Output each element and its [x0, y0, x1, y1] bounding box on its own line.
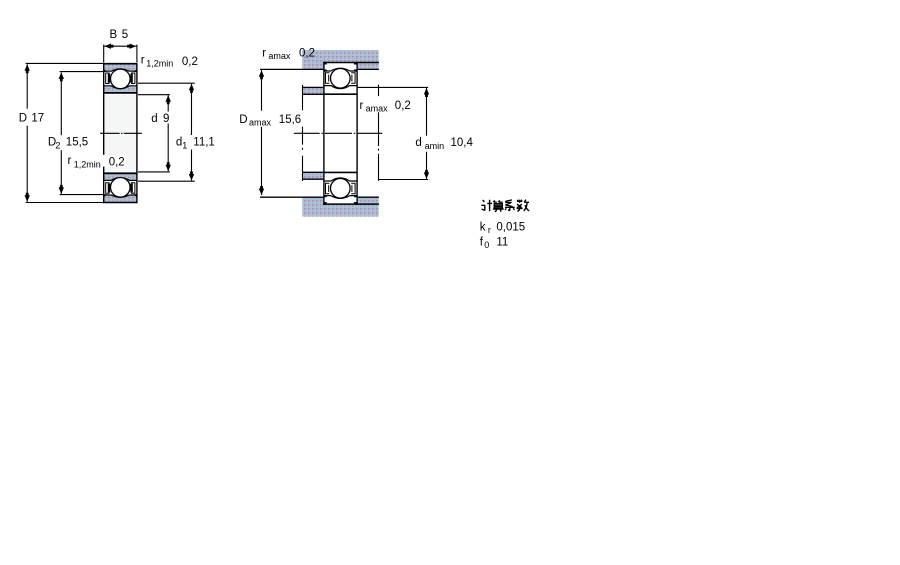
- svg-text:amax: amax: [366, 104, 389, 114]
- svg-text:1,2min: 1,2min: [74, 159, 101, 169]
- svg-text:2: 2: [55, 141, 60, 151]
- svg-text:D: D: [239, 114, 247, 126]
- svg-text:5: 5: [122, 29, 128, 41]
- svg-text:r: r: [488, 225, 491, 235]
- svg-text:d: d: [151, 113, 157, 125]
- svg-text:9: 9: [163, 113, 169, 125]
- svg-text:r: r: [141, 54, 145, 66]
- svg-text:15,6: 15,6: [279, 114, 301, 126]
- svg-text:d: d: [415, 137, 421, 149]
- svg-text:B: B: [110, 29, 118, 41]
- svg-text:17: 17: [31, 113, 44, 125]
- svg-text:11,1: 11,1: [193, 137, 215, 149]
- svg-text:0,2: 0,2: [395, 100, 411, 112]
- svg-text:1: 1: [182, 141, 187, 151]
- svg-text:0,2: 0,2: [299, 48, 315, 60]
- svg-text:r: r: [262, 47, 266, 59]
- svg-text:11: 11: [496, 236, 508, 248]
- svg-text:k: k: [480, 221, 486, 233]
- svg-text:amax: amax: [268, 51, 291, 61]
- svg-text:amin: amin: [425, 141, 445, 151]
- svg-text:10,4: 10,4: [451, 137, 474, 149]
- svg-text:1,2min: 1,2min: [146, 58, 173, 68]
- svg-text:0,2: 0,2: [182, 56, 198, 68]
- svg-text:r: r: [360, 100, 364, 112]
- svg-text:amax: amax: [249, 118, 272, 128]
- svg-text:r: r: [68, 155, 72, 167]
- svg-text:0,015: 0,015: [496, 221, 525, 233]
- svg-text:0: 0: [484, 240, 489, 250]
- svg-text:D: D: [19, 113, 27, 125]
- svg-text:15,5: 15,5: [66, 136, 88, 148]
- svg-text:0,2: 0,2: [109, 156, 125, 168]
